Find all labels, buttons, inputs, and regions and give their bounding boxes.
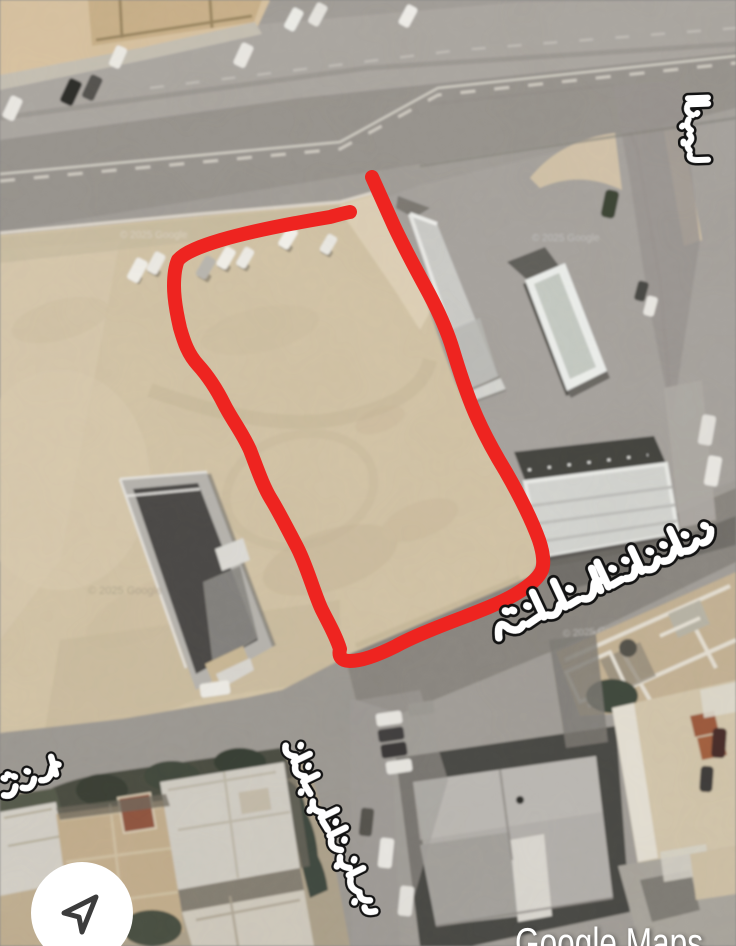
svg-text:Google Maps: Google Maps bbox=[515, 919, 703, 946]
